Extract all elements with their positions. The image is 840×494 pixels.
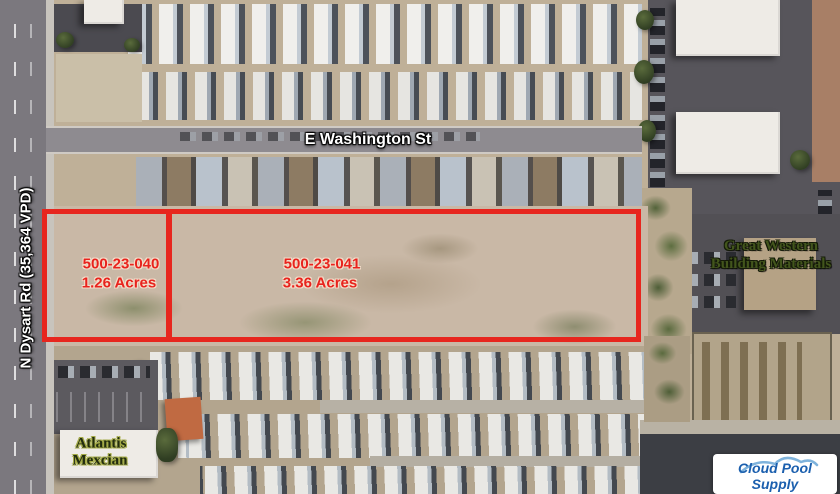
aerial-parcel-map: N Dysart Rd (35,364 VPD) E Washington St… [0,0,840,494]
cloud-pool-supply-text: Cloud Pool Supply [713,460,837,492]
parcel-label-apn: 500-23-040 [83,255,160,274]
parcel-divider-line [166,209,172,342]
parcel-label-apn: 500-23-041 [284,255,361,274]
tree [790,150,810,170]
vacant-dirt-lot [56,54,142,122]
brush-strip [644,336,690,422]
trailer-row [150,352,644,400]
commercial-building [676,112,780,174]
sidewalk [46,0,54,126]
business-label-atlantis-line1: Atlantis [76,436,127,453]
road-label-dysart: N Dysart Rd (35,364 VPD) [18,188,35,369]
tree [124,38,140,52]
tree [634,60,654,84]
cloud-pool-supply-logo: Cloud Pool Supply [713,454,837,494]
business-label-atlantis-line2: Mexcian [73,453,128,470]
trailer-row [128,72,642,120]
parked-cars [650,8,665,206]
commercial-building [676,0,780,56]
tree [636,10,654,30]
lumber-rows [702,342,802,424]
parking-stripes [56,392,152,422]
road-label-washington: E Washington St [305,131,432,149]
business-label-great-western-line2: Building Materials [711,255,831,273]
house-row [136,157,642,207]
business-label-great-western-line1: Great Western [724,237,818,255]
trailer-row [128,4,642,64]
lane-marking [14,0,16,494]
building [84,0,124,24]
tree [156,428,178,462]
trailer-row [200,466,644,494]
parcel-label-acres: 1.26 Acres [82,274,157,293]
dirt-strip [812,0,840,182]
park-street [320,400,644,413]
parcel-label-acres: 3.36 Acres [283,274,358,293]
trailer-row [178,414,644,458]
concrete-apron [640,420,840,434]
tree [56,32,74,48]
parked-cars [58,366,150,378]
